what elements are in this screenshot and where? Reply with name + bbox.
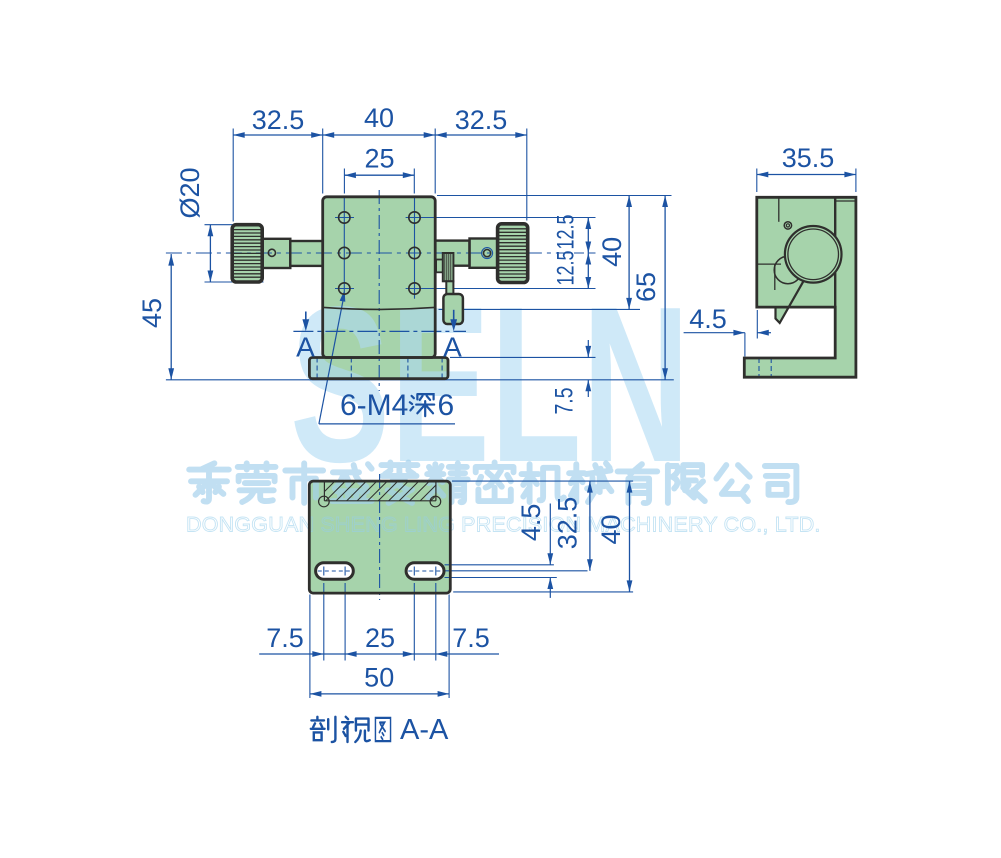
svg-text:65: 65 <box>631 272 661 302</box>
svg-text:A: A <box>296 332 315 363</box>
svg-text:12.5: 12.5 <box>553 251 580 286</box>
svg-text:32.5: 32.5 <box>553 497 583 550</box>
svg-text:Ø20: Ø20 <box>175 167 205 218</box>
svg-text:4.5: 4.5 <box>689 304 727 334</box>
svg-text:40: 40 <box>597 237 627 267</box>
svg-text:40: 40 <box>596 514 626 544</box>
svg-text:6: 6 <box>438 389 455 422</box>
svg-text:25: 25 <box>364 144 394 174</box>
svg-text:DONGGUAN SHENG LING PRECISION: DONGGUAN SHENG LING PRECISION MACHINERY … <box>186 513 821 537</box>
svg-text:50: 50 <box>364 663 394 693</box>
svg-text:32.5: 32.5 <box>252 105 305 135</box>
svg-text:7.5: 7.5 <box>551 388 579 415</box>
svg-text:7.5: 7.5 <box>452 623 490 653</box>
svg-text:35.5: 35.5 <box>782 143 835 173</box>
svg-text:45: 45 <box>137 298 167 328</box>
svg-text:40: 40 <box>364 103 394 133</box>
svg-text:7.5: 7.5 <box>266 623 304 653</box>
svg-text:32.5: 32.5 <box>455 105 508 135</box>
svg-text:6-M4: 6-M4 <box>340 389 408 422</box>
svg-text:A-A: A-A <box>400 714 449 746</box>
svg-text:A: A <box>443 332 462 363</box>
svg-text:25: 25 <box>365 623 395 653</box>
svg-text:4.5: 4.5 <box>516 504 546 542</box>
svg-text:12.5: 12.5 <box>553 215 580 250</box>
